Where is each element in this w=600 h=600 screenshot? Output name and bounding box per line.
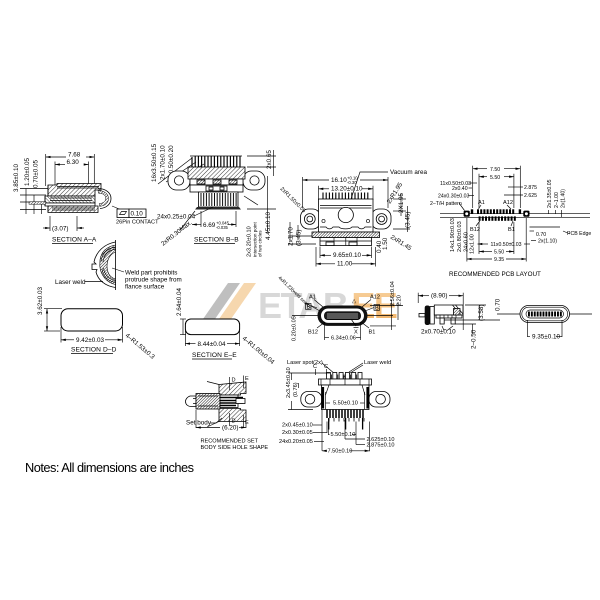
svg-text:6.34±0.06: 6.34±0.06 <box>331 336 356 342</box>
svg-text:2.64±0.04: 2.64±0.04 <box>176 288 183 316</box>
svg-text:2.625: 2.625 <box>524 193 537 199</box>
svg-text:2x0.30±0.05: 2x0.30±0.05 <box>282 430 313 436</box>
svg-text:0.10: 0.10 <box>131 211 144 218</box>
svg-text:SECTION A–A: SECTION A–A <box>52 237 97 244</box>
svg-text:A1: A1 <box>478 200 485 206</box>
svg-text:B12: B12 <box>308 330 318 336</box>
svg-text:3.62±0.03: 3.62±0.03 <box>37 287 44 315</box>
svg-text:24x0.25±0.04: 24x0.25±0.04 <box>157 214 196 221</box>
svg-text:(3.07): (3.07) <box>52 226 68 233</box>
svg-text:B12: B12 <box>470 227 480 233</box>
svg-text:△: △ <box>352 299 357 305</box>
svg-text:7.68: 7.68 <box>68 152 81 159</box>
svg-text:2–0.50: 2–0.50 <box>471 329 478 349</box>
svg-text:1.20±0.05: 1.20±0.05 <box>24 158 31 186</box>
svg-text:BODY SIDE HOLE SHAPE: BODY SIDE HOLE SHAPE <box>201 445 269 451</box>
svg-text:3.85±0.10: 3.85±0.10 <box>13 164 20 192</box>
svg-text:protrude shape from: protrude shape from <box>125 277 182 284</box>
svg-text:(8.90): (8.90) <box>431 293 447 300</box>
svg-text:Laser weld: Laser weld <box>364 360 391 366</box>
svg-text:flance surface: flance surface <box>125 284 165 291</box>
svg-text:(3.45): (3.45) <box>405 212 412 228</box>
svg-text:8.44±0.04: 8.44±0.04 <box>198 341 226 348</box>
svg-text:Weld part prohibits: Weld part prohibits <box>125 270 177 277</box>
svg-text:24x0.20±0.05: 24x0.20±0.05 <box>279 439 313 445</box>
svg-text:16x3.50±0.15: 16x3.50±0.15 <box>151 143 158 182</box>
svg-text:RECOMMENDED SET: RECOMMENDED SET <box>201 439 259 445</box>
svg-text:12x1.00: 12x1.00 <box>470 234 476 254</box>
svg-text:2.875: 2.875 <box>524 185 537 191</box>
svg-text:13.20±0.10: 13.20±0.10 <box>331 186 363 193</box>
svg-text:9.65±0.10: 9.65±0.10 <box>333 252 361 259</box>
svg-text:2x3.45±0.10: 2x3.45±0.10 <box>286 367 292 398</box>
svg-text:16.10: 16.10 <box>331 177 347 184</box>
svg-text:E: E <box>245 420 249 426</box>
svg-text:9.35±0.10: 9.35±0.10 <box>532 334 560 341</box>
svg-text:1.50: 1.50 <box>382 237 389 250</box>
svg-text:(3.58): (3.58) <box>478 305 485 321</box>
svg-text:14x1.90±0.03: 14x1.90±0.03 <box>450 218 456 252</box>
svg-text:26Pin CONTACT: 26Pin CONTACT <box>116 220 159 226</box>
svg-text:E: E <box>245 376 249 382</box>
svg-text:2–1.00: 2–1.00 <box>554 192 560 208</box>
svg-text:D: D <box>232 378 236 384</box>
svg-text:9.35: 9.35 <box>494 257 504 263</box>
svg-text:Vacuum area: Vacuum area <box>390 169 427 176</box>
svg-text:6.30: 6.30 <box>67 159 80 166</box>
svg-text:A12: A12 <box>370 295 380 301</box>
svg-text:7.50±0.10: 7.50±0.10 <box>328 449 353 455</box>
svg-text:2x0.40: 2x0.40 <box>452 186 468 192</box>
svg-text:11.00: 11.00 <box>337 261 353 268</box>
svg-text:C: C <box>313 364 317 370</box>
svg-text:2x(1.40): 2x(1.40) <box>561 189 567 208</box>
svg-text:2x0.80±0.03: 2x0.80±0.03 <box>457 221 463 252</box>
svg-text:2x1.35±0.05: 2x1.35±0.05 <box>547 179 553 208</box>
svg-text:4.45±0.10: 4.45±0.10 <box>265 212 272 240</box>
svg-text:SECTION B–B: SECTION B–B <box>194 237 239 244</box>
svg-text:-0.035: -0.035 <box>216 225 229 230</box>
svg-text:(3.45): (3.45) <box>296 230 303 246</box>
svg-text:Notes: All dimensions are inch: Notes: All dimensions are inches <box>25 460 194 475</box>
svg-text:A12: A12 <box>503 200 513 206</box>
svg-text:Laser spot(2x): Laser spot(2x) <box>287 360 323 366</box>
svg-text:0.70: 0.70 <box>536 232 546 238</box>
svg-text:RECOMMENDED PCB LAYOUT: RECOMMENDED PCB LAYOUT <box>449 271 541 278</box>
svg-text:SECTION E–E: SECTION E–E <box>192 352 237 359</box>
svg-text:(6.20): (6.20) <box>222 425 238 432</box>
svg-text:5.50±0.10: 5.50±0.10 <box>333 401 358 407</box>
svg-text:2.56±0.04: 2.56±0.04 <box>390 281 396 306</box>
svg-text:of two circles: of two circles <box>258 230 263 257</box>
svg-text:24x0.30±0.03: 24x0.30±0.03 <box>438 194 470 200</box>
svg-text:2.875±0.10: 2.875±0.10 <box>367 443 395 449</box>
svg-text:2x0.65: 2x0.65 <box>266 150 273 169</box>
svg-text:(0.76): (0.76) <box>293 382 299 397</box>
svg-text:6.69: 6.69 <box>203 222 216 229</box>
svg-text:2x0.70±0.10: 2x0.70±0.10 <box>421 329 456 336</box>
svg-text:2X1.95: 2X1.95 <box>398 193 405 213</box>
svg-text:C: C <box>324 364 328 370</box>
svg-text:Laser weld: Laser weld <box>55 279 86 286</box>
svg-text:2x1.70±0.10: 2x1.70±0.10 <box>160 145 167 180</box>
svg-text:SECTION D–D: SECTION D–D <box>71 347 117 354</box>
svg-text:7.50: 7.50 <box>490 167 500 173</box>
svg-text:2–T/H pattern: 2–T/H pattern <box>430 201 462 207</box>
svg-text:5.50: 5.50 <box>490 175 500 181</box>
svg-text:0.20±0.05: 0.20±0.05 <box>292 316 298 341</box>
svg-text:B1: B1 <box>369 330 376 336</box>
svg-text:-0.30: -0.30 <box>347 180 357 185</box>
svg-text:Set body: Set body <box>186 420 212 427</box>
svg-text:2.20: 2.20 <box>397 295 403 306</box>
svg-text:5.50: 5.50 <box>494 249 504 255</box>
svg-text:A1: A1 <box>309 295 316 301</box>
svg-text:5.50±0.10: 5.50±0.10 <box>331 432 356 438</box>
svg-text:2x(1.10): 2x(1.10) <box>538 239 557 245</box>
svg-text:9.42±0.03: 9.42±0.03 <box>76 337 104 344</box>
svg-text:0.70±0.05: 0.70±0.05 <box>33 160 40 188</box>
svg-text:PCB Edge: PCB Edge <box>567 231 591 237</box>
svg-text:0.70: 0.70 <box>495 298 502 311</box>
svg-text:11x0.50±0.03: 11x0.50±0.03 <box>491 242 522 248</box>
svg-text:2x0.45±0.10: 2x0.45±0.10 <box>282 423 313 429</box>
